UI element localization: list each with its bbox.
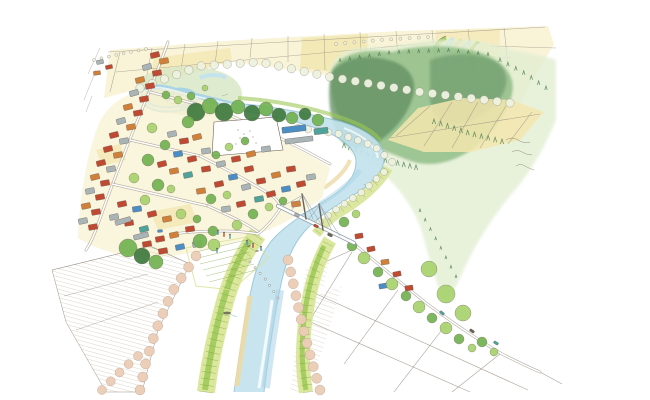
row-tree bbox=[415, 88, 423, 96]
school-yard bbox=[212, 117, 283, 156]
row-tree bbox=[403, 86, 411, 94]
house bbox=[93, 71, 100, 76]
row-tree bbox=[364, 140, 371, 147]
row-tree bbox=[349, 195, 356, 202]
person bbox=[260, 246, 262, 251]
row-tree bbox=[506, 99, 514, 107]
row-tree bbox=[377, 81, 385, 89]
stone bbox=[273, 291, 275, 293]
tree bbox=[373, 267, 383, 277]
stone bbox=[264, 278, 266, 280]
row-tree bbox=[364, 79, 372, 87]
row-tree bbox=[115, 368, 124, 377]
row-tree bbox=[288, 279, 298, 289]
tree bbox=[182, 116, 194, 128]
row-tree bbox=[135, 385, 145, 395]
tree bbox=[149, 255, 163, 269]
person bbox=[217, 230, 219, 235]
tree bbox=[339, 217, 349, 227]
tree bbox=[413, 301, 425, 313]
pen-line bbox=[344, 290, 398, 364]
tree bbox=[134, 248, 150, 264]
row-tree bbox=[441, 91, 449, 99]
row-tree bbox=[325, 73, 333, 81]
row-tree bbox=[287, 65, 295, 73]
tree bbox=[401, 291, 411, 301]
row-tree bbox=[100, 57, 103, 60]
house bbox=[393, 271, 402, 278]
row-tree bbox=[294, 303, 304, 313]
pen-line bbox=[86, 96, 92, 112]
stone bbox=[249, 261, 251, 263]
tree bbox=[455, 305, 471, 321]
tree bbox=[244, 105, 260, 121]
tree bbox=[140, 195, 150, 205]
tree bbox=[468, 344, 476, 352]
row-tree bbox=[130, 50, 133, 53]
row-tree bbox=[408, 37, 411, 40]
school-ground bbox=[212, 117, 283, 156]
watercolor-aerial-illustration bbox=[0, 0, 650, 400]
row-tree bbox=[93, 59, 96, 62]
row-tree bbox=[124, 360, 133, 369]
row-tree bbox=[366, 182, 373, 189]
row-tree bbox=[302, 338, 312, 348]
tree bbox=[129, 173, 139, 183]
row-tree bbox=[454, 92, 462, 100]
tree bbox=[440, 322, 452, 334]
tree bbox=[232, 220, 242, 230]
row-tree bbox=[362, 40, 365, 43]
row-tree bbox=[106, 377, 115, 386]
row-tree bbox=[184, 262, 194, 272]
row-tree bbox=[388, 158, 395, 165]
row-tree bbox=[236, 59, 244, 67]
tree bbox=[193, 234, 207, 248]
house bbox=[96, 59, 104, 64]
row-tree bbox=[283, 255, 293, 265]
tree bbox=[477, 337, 487, 347]
tree bbox=[358, 252, 370, 264]
row-tree bbox=[373, 145, 380, 152]
row-tree bbox=[160, 75, 168, 83]
row-tree bbox=[300, 67, 308, 75]
row-tree bbox=[122, 52, 125, 55]
row-tree bbox=[417, 36, 420, 39]
row-tree bbox=[299, 326, 309, 336]
row-tree bbox=[144, 346, 154, 356]
row-tree bbox=[315, 385, 325, 395]
row-tree bbox=[249, 58, 257, 66]
tree bbox=[427, 313, 437, 323]
row-tree bbox=[354, 137, 361, 144]
tree bbox=[279, 197, 287, 205]
tree bbox=[160, 140, 170, 150]
tree bbox=[167, 185, 175, 193]
row-tree bbox=[172, 70, 180, 78]
tree bbox=[286, 112, 298, 124]
row-tree bbox=[312, 373, 322, 383]
row-tree bbox=[138, 372, 148, 382]
stone bbox=[259, 272, 261, 274]
row-tree bbox=[308, 362, 318, 372]
row-tree bbox=[373, 175, 380, 182]
row-tree bbox=[338, 75, 346, 83]
row-tree bbox=[381, 169, 388, 176]
tree bbox=[187, 92, 195, 100]
row-tree bbox=[163, 296, 173, 306]
row-tree bbox=[333, 206, 340, 213]
row-tree bbox=[428, 89, 436, 97]
row-tree bbox=[134, 352, 143, 361]
row-tree bbox=[351, 77, 359, 85]
row-tree bbox=[107, 55, 110, 58]
house bbox=[201, 148, 211, 155]
tree bbox=[231, 100, 245, 114]
row-tree bbox=[296, 314, 306, 324]
row-tree bbox=[390, 83, 398, 91]
tree bbox=[223, 191, 231, 199]
person bbox=[216, 248, 218, 253]
tree bbox=[259, 102, 273, 116]
row-tree bbox=[145, 48, 148, 51]
row-tree bbox=[197, 62, 205, 70]
stone bbox=[254, 267, 256, 269]
tree bbox=[241, 137, 249, 145]
tree bbox=[193, 215, 201, 223]
row-tree bbox=[493, 97, 501, 105]
tree bbox=[490, 348, 498, 356]
tree bbox=[152, 179, 164, 191]
stone bbox=[277, 297, 279, 299]
house bbox=[132, 206, 142, 213]
house bbox=[221, 206, 231, 213]
row-tree bbox=[98, 386, 107, 395]
tree bbox=[215, 103, 233, 121]
tree bbox=[312, 114, 324, 126]
tree bbox=[212, 151, 220, 159]
person bbox=[246, 240, 248, 245]
house bbox=[285, 136, 313, 144]
row-tree bbox=[313, 70, 321, 78]
row-tree bbox=[381, 152, 388, 159]
row-tree bbox=[169, 284, 179, 294]
row-tree bbox=[335, 130, 342, 137]
car bbox=[157, 229, 162, 232]
row-tree bbox=[380, 38, 383, 41]
row-tree bbox=[158, 309, 168, 319]
illustration-canvas bbox=[0, 0, 650, 400]
tree bbox=[299, 108, 311, 120]
tree bbox=[386, 278, 398, 290]
row-tree bbox=[262, 59, 270, 67]
row-tree bbox=[286, 267, 296, 277]
tree bbox=[421, 261, 437, 277]
tree bbox=[202, 85, 208, 91]
row-tree bbox=[341, 200, 348, 207]
house bbox=[286, 166, 296, 173]
row-tree bbox=[344, 42, 347, 45]
tree bbox=[265, 203, 273, 211]
person bbox=[229, 234, 231, 239]
house bbox=[196, 188, 206, 195]
tree bbox=[162, 91, 170, 99]
tree bbox=[352, 210, 360, 218]
pen-line bbox=[540, 372, 562, 384]
house bbox=[282, 125, 307, 134]
house bbox=[185, 226, 195, 233]
row-tree bbox=[176, 273, 186, 283]
tree bbox=[206, 194, 216, 204]
stone bbox=[268, 284, 270, 286]
tree bbox=[225, 143, 233, 151]
house bbox=[261, 146, 271, 153]
tree bbox=[142, 154, 154, 166]
row-tree bbox=[191, 251, 201, 261]
house bbox=[201, 166, 211, 173]
row-tree bbox=[223, 60, 231, 68]
row-tree bbox=[275, 62, 283, 70]
house bbox=[355, 233, 364, 239]
row-tree bbox=[353, 41, 356, 44]
person bbox=[252, 243, 254, 248]
row-tree bbox=[426, 35, 429, 38]
row-tree bbox=[467, 94, 475, 102]
row-tree bbox=[210, 61, 218, 69]
house bbox=[179, 138, 189, 145]
tree bbox=[147, 123, 157, 133]
row-tree bbox=[305, 350, 315, 360]
row-tree bbox=[390, 38, 393, 41]
row-tree bbox=[148, 333, 158, 343]
row-tree bbox=[141, 359, 151, 369]
row-tree bbox=[137, 49, 140, 52]
tree bbox=[248, 209, 258, 219]
row-tree bbox=[371, 39, 374, 42]
row-tree bbox=[115, 53, 118, 56]
tree bbox=[454, 334, 464, 344]
row-tree bbox=[358, 189, 365, 196]
tree bbox=[437, 285, 455, 303]
tree bbox=[208, 226, 218, 236]
row-tree bbox=[185, 66, 193, 74]
row-tree bbox=[153, 321, 163, 331]
car bbox=[493, 341, 499, 346]
person bbox=[223, 232, 225, 237]
row-tree bbox=[480, 96, 488, 104]
row-tree bbox=[291, 291, 301, 301]
row-tree bbox=[334, 42, 337, 45]
house bbox=[405, 285, 414, 291]
row-tree bbox=[399, 37, 402, 40]
pen-line bbox=[394, 322, 448, 392]
tree bbox=[208, 239, 220, 251]
pen-line bbox=[452, 354, 500, 392]
tree bbox=[176, 209, 186, 219]
house bbox=[367, 246, 376, 253]
tree bbox=[272, 108, 286, 122]
tree bbox=[174, 96, 182, 104]
house bbox=[381, 259, 390, 265]
row-tree bbox=[345, 133, 352, 140]
